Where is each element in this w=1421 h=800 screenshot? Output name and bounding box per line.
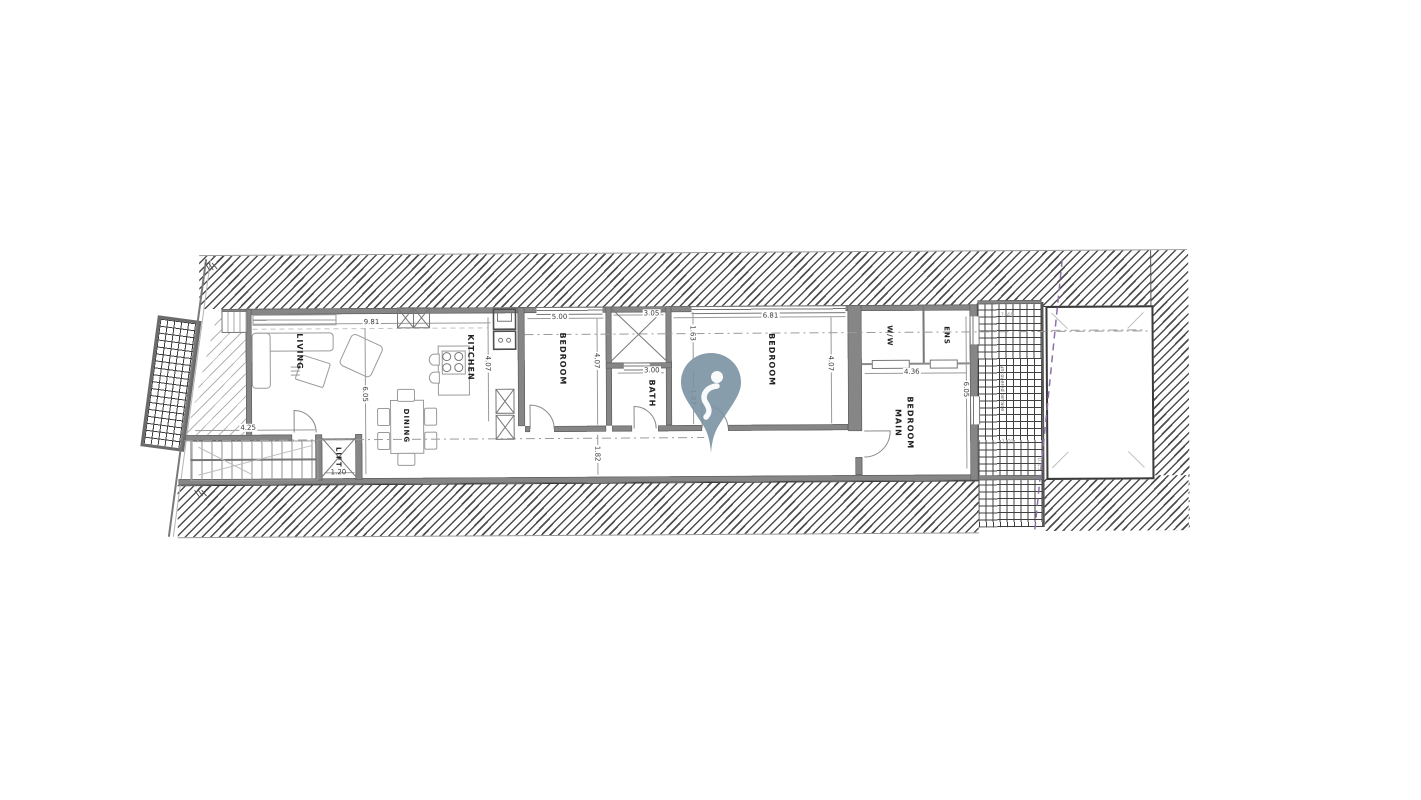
window-main-yard [970, 396, 980, 424]
dim-living-depth: 6.05 [361, 385, 369, 403]
dim-bath-depth: 1.87 [689, 388, 697, 406]
wall-yard-bottom [978, 475, 1042, 480]
dim-yard-inner: 1.25 [1001, 439, 1016, 446]
room-label-bedroom1: BEDROOM [558, 332, 567, 385]
dim-bedroom1-depth: 4.07 [593, 352, 601, 370]
entrance-door [221, 311, 247, 333]
room-label-dining: DINING [402, 409, 410, 444]
wall-yard-top [977, 300, 1041, 304]
wall-seg [658, 425, 702, 431]
party-wall-hatch-bottom [178, 480, 979, 538]
wall-seg [525, 426, 530, 432]
annotation-mark [291, 371, 300, 372]
dim-main-bedroom-depth: 6.05 [962, 381, 970, 399]
window-bedroom1 [536, 307, 602, 315]
dim-kitchen-depth: 4.07 [484, 355, 492, 373]
dim-bedroom2-depth: 4.07 [827, 354, 835, 372]
floor-plan-canvas: LIVING DINING KITCHEN BEDROOM BATH BEDRO… [0, 0, 1421, 800]
sofa-left-arm [252, 333, 271, 389]
party-wall-hatch-bottom-right [1042, 475, 1188, 531]
room-label-living: LIVING [295, 333, 304, 370]
dim-stairs-width: 4.25 [239, 424, 257, 432]
wall-main-door-jamb [855, 457, 862, 475]
dining-chair [377, 408, 390, 426]
dim-shaft-depth: 1.63 [689, 324, 697, 342]
wall-seg [728, 424, 848, 431]
room-label-ww: W/W [886, 325, 894, 346]
dining-chair [424, 408, 437, 426]
dining-chair [397, 453, 415, 466]
kitchen-stool [429, 354, 440, 366]
dim-yard-offset: 0.15 [1036, 456, 1043, 471]
dining-chair [377, 432, 390, 450]
wall-kitchen-bedroom1 [517, 307, 525, 426]
room-label-kitchen: KITCHEN [466, 334, 475, 380]
kitchen-hob [442, 350, 466, 374]
dim-bedroom1-width: 5.00 [551, 313, 569, 321]
room-label-main-bedroom-1: MAIN [894, 409, 903, 437]
dim-yard-width: 1.40 [1000, 312, 1015, 319]
room-label-bedroom2: BEDROOM [767, 333, 776, 386]
room-label-ens: ENS [943, 326, 951, 345]
wall-seg [612, 425, 632, 431]
annotation-mark [291, 375, 300, 376]
wall-seg [554, 426, 606, 432]
dim-bath-width: 3.00 [643, 366, 661, 374]
dim-main-bedroom-width: 4.36 [903, 368, 921, 376]
kitchen-stool [429, 372, 440, 384]
dim-corridor-width: 1.82 [593, 445, 601, 463]
floor-plan: LIVING DINING KITCHEN BEDROOM BATH BEDRO… [0, 0, 1421, 800]
rear-yard-grid [977, 302, 1044, 527]
staircase [190, 440, 318, 481]
yard-note-label: uncovered terrace [999, 365, 1005, 411]
dim-lift-width: 1.20 [330, 468, 348, 476]
dim-living-width: 9.81 [363, 318, 381, 326]
room-label-main-bedroom-2: BEDROOM [905, 396, 914, 449]
dim-shaft-width: 3.05 [643, 309, 661, 317]
wall-bedroom2-main [847, 305, 862, 431]
room-label-bath: BATH [647, 379, 656, 407]
room-label-lift: LIFT [334, 447, 342, 468]
wall-lift-right [355, 434, 362, 480]
dim-bedroom2-width: 6.81 [762, 312, 780, 320]
dining-chair [397, 389, 415, 402]
sliding-door-panel [930, 359, 958, 368]
dining-chair [424, 432, 437, 450]
